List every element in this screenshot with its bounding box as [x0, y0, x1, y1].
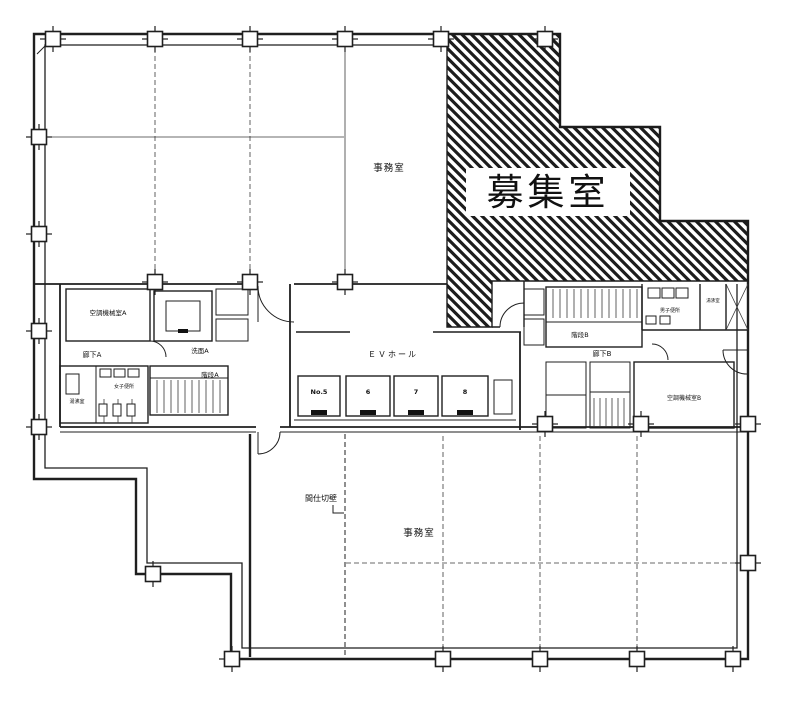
shaft-box [216, 289, 248, 315]
womens-wc-label: 女子便所 [114, 383, 134, 390]
stair-b-label: 階段B [571, 330, 588, 339]
partition-annotation: 間仕切壁 [305, 493, 344, 513]
service-elevator-shaft [154, 291, 212, 341]
corridor-a-label: 廊下A [83, 350, 102, 359]
ev-hall-label: ＥＶホール [368, 350, 418, 359]
right-core-doors [652, 344, 747, 374]
tenant-partitions [250, 434, 345, 657]
toilets-right [642, 284, 748, 330]
machine-room-b-label: 空調機械室B [667, 394, 701, 402]
right-core: 階段B 廊下B 男子便所 湯沸室 空調機械室B [524, 284, 748, 428]
toilets-left [60, 366, 148, 423]
corridor-b-label: 廊下B [593, 349, 612, 358]
stair-a-label: 階段A [201, 370, 219, 379]
vacant-room-text: 募集室 [487, 171, 610, 214]
elevator-3-number: 7 [414, 388, 419, 396]
elevator-bank: No.5 6 7 8 [298, 376, 512, 416]
floor-plan-page: 募集室 事務室 事務室 [0, 0, 787, 708]
shaft-box [216, 319, 248, 341]
mens-wc-label: 男子便所 [660, 307, 680, 314]
vacant-room-label: 募集室 [466, 168, 630, 216]
elevator-2-number: 6 [366, 388, 371, 396]
partition-annotation-text: 間仕切壁 [305, 493, 337, 503]
shaft-box [524, 289, 544, 315]
stair-b [546, 287, 642, 347]
left-core: 空調機械室A 廊下A 洗面A 階段A 女子便所 湯沸室 [60, 289, 248, 423]
office-top-label: 事務室 [373, 162, 405, 174]
door-arc [150, 341, 166, 357]
elevator-1-number: No.5 [311, 388, 328, 396]
shaft-box [494, 380, 512, 414]
office-bottom-label: 事務室 [403, 527, 435, 539]
elevator-4-number: 8 [463, 388, 468, 396]
hot-water-a-label: 湯沸室 [69, 398, 84, 405]
floor-plan: 募集室 事務室 事務室 [0, 0, 787, 708]
shaft-box [524, 319, 544, 345]
hot-water-b-label: 湯沸室 [706, 297, 720, 304]
washroom-a-label: 洗面A [191, 346, 209, 355]
machine-room-a-label: 空調機械室A [90, 308, 128, 317]
